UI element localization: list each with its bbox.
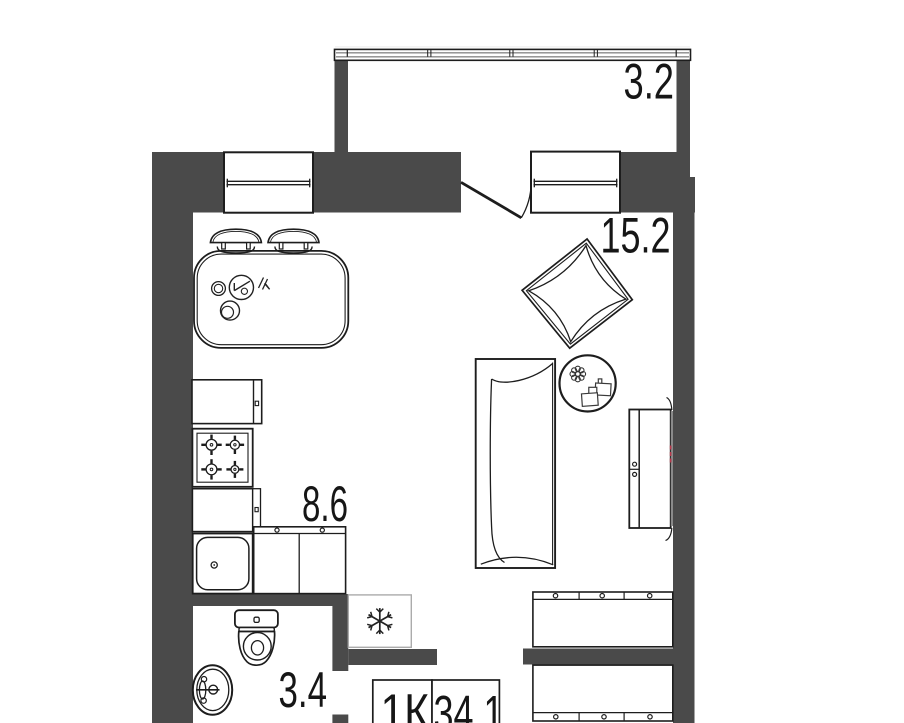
svg-text:1К: 1К (381, 684, 430, 723)
svg-text:8.6: 8.6 (302, 476, 348, 532)
svg-text:3.2: 3.2 (624, 54, 675, 110)
svg-text:3.4: 3.4 (279, 662, 328, 718)
svg-text:34.1: 34.1 (434, 686, 504, 723)
svg-text:15.2: 15.2 (601, 208, 671, 264)
